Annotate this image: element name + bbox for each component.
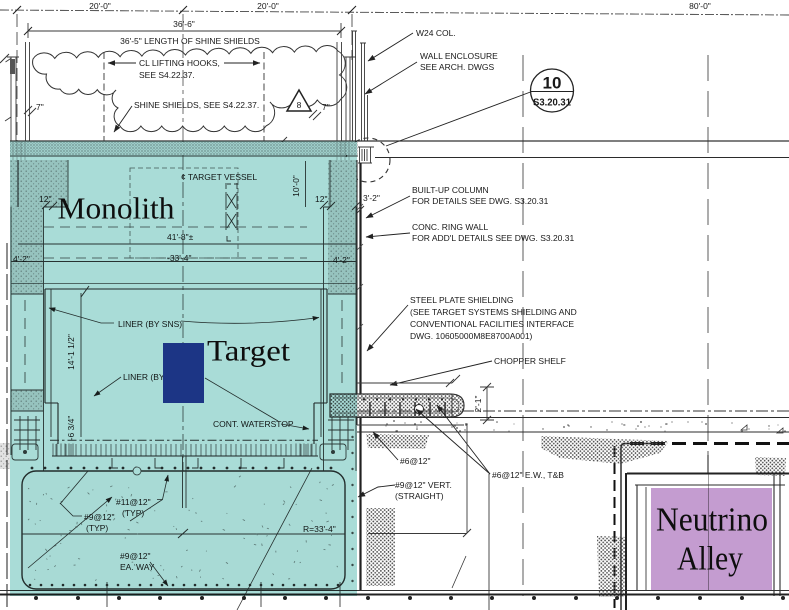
svg-text:#6@12" E.W., T&B: #6@12" E.W., T&B	[492, 470, 564, 480]
svg-text:BUILT-UP COLUMN: BUILT-UP COLUMN	[412, 185, 489, 195]
svg-text:CL LIFTING HOOKS,: CL LIFTING HOOKS,	[139, 58, 220, 68]
svg-text:Neutrino: Neutrino	[656, 502, 768, 539]
svg-text:#9@12" VERT.: #9@12" VERT.	[395, 480, 452, 490]
svg-text:Alley: Alley	[677, 541, 743, 578]
svg-text:Target: Target	[207, 335, 291, 368]
svg-text:Monolith: Monolith	[58, 191, 176, 226]
svg-text:SEE ARCH. DWGS: SEE ARCH. DWGS	[420, 62, 494, 72]
svg-text:CHOPPER SHELF: CHOPPER SHELF	[494, 356, 566, 366]
svg-text:36'-5" LENGTH OF SHINE SHIELDS: 36'-5" LENGTH OF SHINE SHIELDS	[120, 36, 260, 46]
svg-text:CONVENTIONAL FACILITIES INTERF: CONVENTIONAL FACILITIES INTERFACE	[410, 319, 574, 329]
svg-text:FOR DETAILS SEE DWG. S3.20.31: FOR DETAILS SEE DWG. S3.20.31	[412, 196, 549, 206]
svg-text:(STRAIGHT): (STRAIGHT)	[395, 491, 444, 501]
svg-text:8: 8	[297, 100, 302, 110]
svg-text:S3.20.31: S3.20.31	[533, 98, 571, 109]
svg-text:2'-1": 2'-1"	[473, 396, 483, 413]
svg-text:20'-0": 20'-0"	[257, 1, 279, 11]
svg-text:(SEE TARGET SYSTEMS SHIELDING: (SEE TARGET SYSTEMS SHIELDING AND	[410, 307, 577, 317]
svg-text:20'-0": 20'-0"	[89, 1, 111, 11]
svg-text:7": 7"	[322, 102, 330, 112]
svg-text:CONC. RING WALL: CONC. RING WALL	[412, 222, 488, 232]
svg-text:STEEL PLATE SHIELDING: STEEL PLATE SHIELDING	[410, 295, 513, 305]
svg-text:3'-2": 3'-2"	[363, 193, 380, 203]
svg-text:DWG. 10605000M8E8700A001): DWG. 10605000M8E8700A001)	[410, 331, 533, 341]
svg-text:36'-6": 36'-6"	[173, 19, 195, 29]
svg-text:80'-0": 80'-0"	[689, 1, 711, 11]
svg-text:W24 COL.: W24 COL.	[416, 28, 456, 38]
svg-text:FOR ADD'L DETAILS SEE DWG. S3.: FOR ADD'L DETAILS SEE DWG. S3.20.31	[412, 233, 575, 243]
svg-text:SHINE SHIELDS, SEE S4.22.37.: SHINE SHIELDS, SEE S4.22.37.	[134, 100, 259, 110]
svg-text:WALL ENCLOSURE: WALL ENCLOSURE	[420, 51, 498, 61]
svg-text:SEE S4.22.37.: SEE S4.22.37.	[139, 70, 195, 80]
svg-text:#6@12": #6@12"	[400, 456, 431, 466]
svg-text:10: 10	[543, 74, 562, 93]
svg-text:7": 7"	[36, 102, 44, 112]
